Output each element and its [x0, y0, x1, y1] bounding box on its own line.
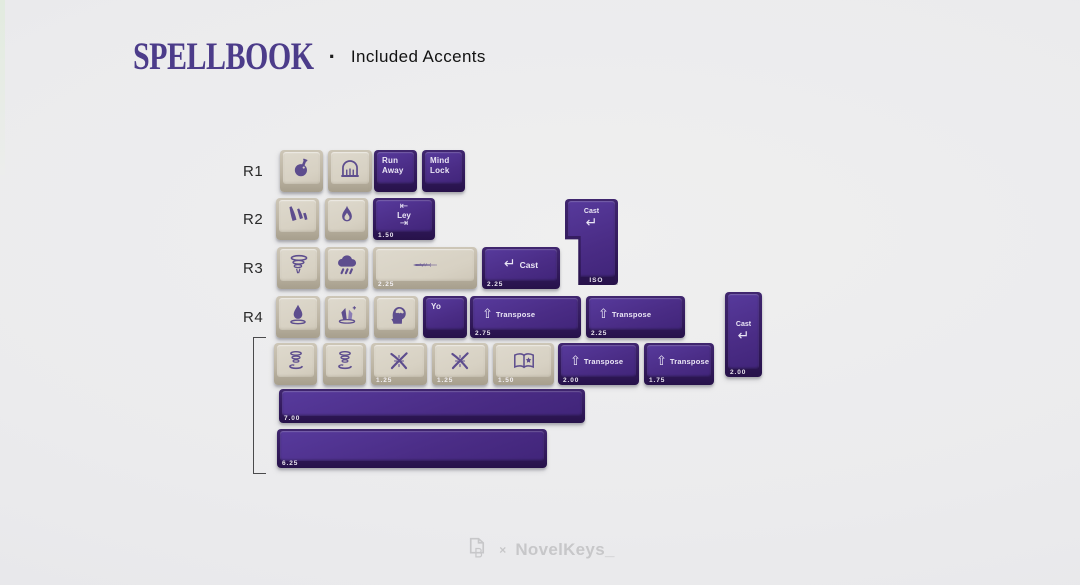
- key-size-label: 2.00: [563, 377, 579, 384]
- key-size-label: 6.25: [282, 460, 298, 467]
- keycap-book: 1.50: [493, 343, 554, 385]
- key-size-label: 2.25: [487, 281, 503, 288]
- key-size-label: 2.25: [378, 281, 394, 288]
- keycap-potion: [280, 150, 323, 192]
- keycap-flame: [325, 198, 368, 240]
- droplet-icon: [285, 301, 311, 327]
- keycap-ley: ⇤Ley⇥1.50: [373, 198, 435, 240]
- keycap-levitate-1: [274, 343, 317, 385]
- key-label: Transpose: [496, 310, 535, 319]
- keycap-transpose-175: ⇧Transpose1.75: [644, 343, 714, 385]
- db-logo-icon: [465, 535, 490, 565]
- keycap-transpose-275: ⇧Transpose2.75: [470, 296, 581, 338]
- book-icon: [511, 348, 537, 374]
- levitate-icon: [283, 348, 309, 374]
- keycap-wands-1: 1.25: [371, 343, 427, 385]
- keycap-storm: [325, 247, 368, 289]
- flame-icon: [334, 203, 360, 229]
- keycap-tornado: [277, 247, 320, 289]
- keycap-cast-iso-enter: Cast↵ISO: [565, 199, 618, 285]
- keycap-droplet: [276, 296, 320, 338]
- wands-icon: [386, 348, 412, 374]
- keycap-run-away: RunAway: [374, 150, 417, 192]
- collab-x-separator: ×: [499, 543, 506, 557]
- crystal-icon: [334, 301, 360, 327]
- enter-arrow-icon: ↵: [586, 216, 598, 230]
- keycap-head: [374, 296, 418, 338]
- keycap-sword: 2.25: [373, 247, 477, 289]
- row-label-r4: R4: [243, 309, 273, 326]
- key-size-label: 1.75: [649, 377, 665, 384]
- key-size-label: 2.25: [591, 330, 607, 337]
- key-size-label: 1.50: [498, 377, 514, 384]
- key-size-label: 7.00: [284, 415, 300, 422]
- title-block: SPELLBOOK · Included Accents: [133, 40, 486, 74]
- key-size-label: 1.25: [376, 377, 392, 384]
- keycap-wands-2: 1.25: [432, 343, 488, 385]
- sword-icon: [412, 252, 438, 278]
- spellbook-logo: SPELLBOOK: [133, 35, 314, 80]
- key-label: Transpose: [584, 357, 623, 366]
- keycap-transpose-225: ⇧Transpose2.25: [586, 296, 685, 338]
- meteor-icon: [285, 203, 311, 229]
- row-label-r1: R1: [243, 163, 273, 180]
- keycap-cast: ↵Cast2.25: [482, 247, 560, 289]
- row-label-r3: R3: [243, 260, 273, 277]
- tornado-icon: [286, 252, 312, 278]
- footer: × NovelKeys_: [0, 535, 1080, 565]
- keycap-mind-lock: MindLock: [422, 150, 465, 192]
- enter-arrow-icon: ↵: [738, 329, 750, 343]
- title-separator-dot: ·: [329, 46, 336, 68]
- key-label: Cast: [584, 208, 599, 215]
- levitate-icon: [332, 348, 358, 374]
- key-label: Transpose: [670, 357, 709, 366]
- wands-icon: [447, 348, 473, 374]
- group-bracket: [253, 337, 266, 474]
- keycap-levitate-2: [323, 343, 366, 385]
- keycap-cast-vertical: Cast↵2.00: [725, 292, 762, 377]
- potion-icon: [289, 155, 315, 181]
- shift-arrow-icon: ⇧: [656, 355, 667, 368]
- key-label: Transpose: [612, 310, 651, 319]
- head-icon: [383, 301, 409, 327]
- shift-arrow-icon: ⇧: [482, 308, 493, 321]
- novelkeys-logo: NovelKeys_: [515, 540, 614, 560]
- key-label: Cast: [520, 260, 538, 270]
- row-label-r2: R2: [243, 211, 273, 228]
- product-photo: SPELLBOOK · Included Accents R1R2R3R4 Ru…: [0, 0, 1080, 585]
- key-size-label: 1.50: [378, 232, 394, 239]
- key-size-label: 2.75: [475, 330, 491, 337]
- keycap-gate: [328, 150, 372, 192]
- key-size-label: 2.00: [730, 369, 746, 376]
- key-size-label: 1.25: [437, 377, 453, 384]
- keycap-yo: Yo: [423, 296, 467, 338]
- key-size-label: ISO: [589, 277, 603, 284]
- tab-right-icon: ⇥: [400, 220, 408, 229]
- keycap-spacebar-625u: 6.25: [277, 429, 547, 468]
- page-title: Included Accents: [351, 47, 486, 67]
- storm-icon: [334, 252, 360, 278]
- keycap-spacebar-7u: 7.00: [279, 389, 585, 423]
- gate-icon: [337, 155, 363, 181]
- key-label: Cast: [736, 321, 751, 328]
- keycap-meteor: [276, 198, 319, 240]
- photo-edge-artifact: [0, 0, 5, 175]
- enter-arrow-icon: ↵: [504, 257, 516, 271]
- shift-arrow-icon: ⇧: [598, 308, 609, 321]
- keycap-transpose-200: ⇧Transpose2.00: [558, 343, 639, 385]
- shift-arrow-icon: ⇧: [570, 355, 581, 368]
- keycap-crystal: [325, 296, 369, 338]
